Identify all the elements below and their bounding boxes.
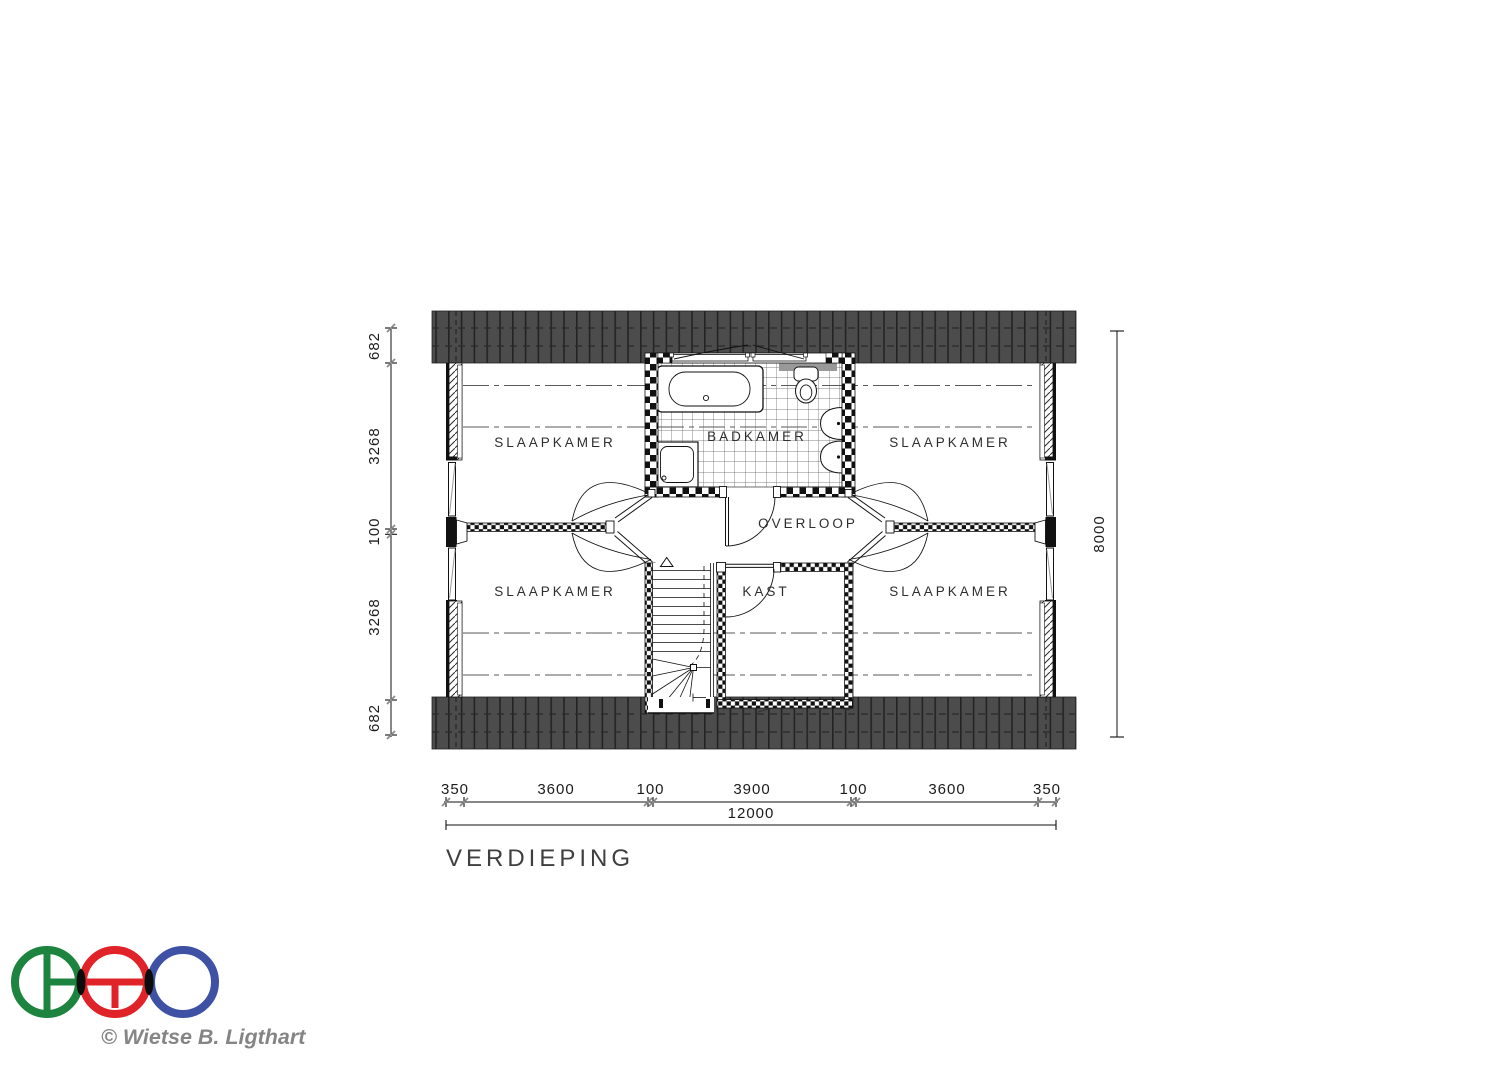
dim-left-682-bottom: 682 (366, 704, 383, 732)
room-label-badkamer: BADKAMER (707, 429, 807, 444)
landing (462, 482, 1038, 571)
interior-wall-right (892, 523, 1038, 531)
dimension-right: 8000 (1091, 331, 1124, 737)
dimension-chain-bottom: 350 3600 100 3900 100 3600 350 (441, 781, 1061, 807)
toilet (794, 367, 818, 403)
dim-bottom-3600-right: 3600 (928, 781, 965, 798)
logo-lens-left (77, 969, 86, 995)
room-label-slaapkamer-tl: SLAAPKAMER (494, 435, 616, 450)
dimension-total-bottom: 12000 (446, 805, 1056, 830)
exterior-wall-right (1035, 363, 1056, 697)
room-label-overloop: OVERLOOP (758, 516, 858, 531)
floorplan-drawing: SLAAPKAMER SLAAPKAMER SLAAPKAMER SLAAPKA… (0, 0, 1500, 1060)
interior-wall-left (462, 523, 608, 531)
bathroom-wall-left (645, 353, 658, 497)
stair-wall-left (645, 563, 653, 713)
logo-lens-right (145, 969, 154, 995)
room-label-kast: KAST (742, 584, 789, 599)
bathroom-wall-bottom (645, 487, 855, 498)
room-label-slaapkamer-br: SLAAPKAMER (889, 584, 1011, 599)
logo-circle-blue (151, 950, 215, 1014)
dim-right-8000: 8000 (1091, 515, 1108, 552)
dim-left-3268-bottom: 3268 (366, 598, 383, 635)
dim-bottom-350-right: 350 (1033, 781, 1061, 798)
floorplan-page: SLAAPKAMER SLAAPKAMER SLAAPKAMER SLAAPKA… (0, 0, 1500, 1060)
newel-post (691, 665, 697, 671)
copyright-text: © Wietse B. Ligthart (101, 1025, 306, 1049)
copyright: © Wietse B. Ligthart © Wietse B. Ligthar… (99, 1023, 306, 1049)
room-label-slaapkamer-tr: SLAAPKAMER (889, 435, 1011, 450)
dim-left-3268-top: 3268 (366, 427, 383, 464)
dim-left-100: 100 (366, 517, 383, 545)
dim-bottom-12000: 12000 (728, 805, 775, 822)
shower (656, 442, 698, 487)
dim-bottom-100-right: 100 (839, 781, 867, 798)
roof-window-frame-left (672, 355, 748, 362)
dim-bottom-3900: 3900 (733, 781, 770, 798)
exterior-wall-left (446, 363, 467, 697)
bathtub (657, 366, 763, 412)
staircase (645, 558, 714, 714)
plan-title: VERDIEPING (446, 845, 634, 872)
dim-bottom-350-left: 350 (441, 781, 469, 798)
room-label-slaapkamer-bl: SLAAPKAMER (494, 584, 616, 599)
bathroom-wall-right (842, 353, 855, 497)
dim-left-682-top: 682 (366, 332, 383, 360)
dim-bottom-100-left: 100 (636, 781, 664, 798)
stair-direction-marker (661, 558, 674, 567)
logo (15, 950, 215, 1014)
dim-bottom-3600-left: 3600 (537, 781, 574, 798)
door-swings (572, 482, 928, 571)
dimension-chain-left: 682 3268 100 3268 682 (366, 324, 397, 739)
